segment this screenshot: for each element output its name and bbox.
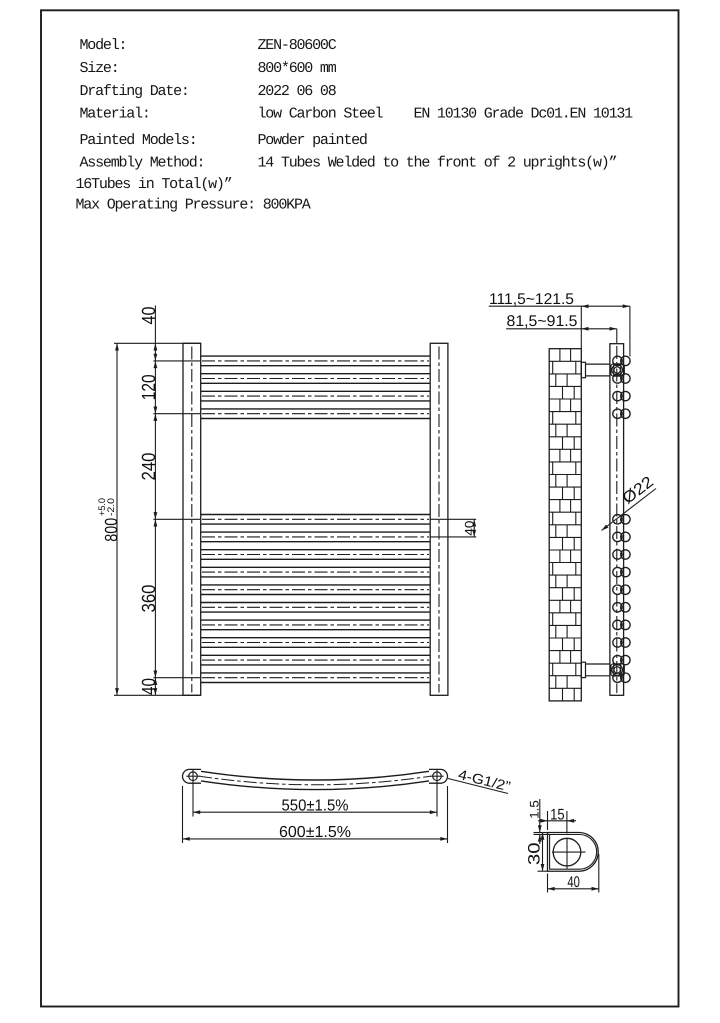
- svg-text:800*600 mm: 800*600 mm: [258, 60, 337, 77]
- svg-text:Drafting Date:: Drafting Date:: [80, 83, 189, 100]
- svg-text:15: 15: [550, 806, 565, 823]
- svg-text:Max Operating Pressure: 800KPA: Max Operating Pressure: 800KPA: [76, 197, 311, 214]
- svg-text:40: 40: [139, 307, 160, 325]
- svg-text:Powder painted: Powder painted: [258, 132, 367, 149]
- svg-text:1.5: 1.5: [528, 800, 542, 819]
- svg-text:-2.0: -2.0: [106, 498, 117, 516]
- svg-text:Size:: Size:: [80, 60, 119, 77]
- svg-text:2022 06 08: 2022 06 08: [258, 83, 337, 100]
- svg-text:360: 360: [139, 585, 160, 613]
- svg-text:Assembly Method:: Assembly Method:: [80, 154, 205, 171]
- svg-text:ZEN-80600C: ZEN-80600C: [258, 37, 337, 54]
- svg-text:40: 40: [567, 874, 580, 891]
- svg-text:40: 40: [139, 678, 160, 695]
- svg-text:600±1.5%: 600±1.5%: [279, 824, 351, 841]
- svg-text:40: 40: [462, 521, 476, 536]
- svg-text:16Tubes in Total(w)”: 16Tubes in Total(w)”: [76, 176, 232, 193]
- svg-text:Painted Models:: Painted Models:: [80, 132, 197, 149]
- svg-text:111,5~121.5: 111,5~121.5: [489, 291, 574, 308]
- svg-text:550±1.5%: 550±1.5%: [282, 797, 349, 814]
- svg-text:4-G1/2”: 4-G1/2”: [457, 766, 513, 794]
- svg-text:800: 800: [101, 518, 121, 542]
- svg-text:low Carbon Steel EN 10130 G: low Carbon Steel EN 10130 Grade Dc01.EN …: [258, 106, 634, 123]
- svg-text:Material:: Material:: [80, 106, 150, 123]
- svg-text:240: 240: [139, 453, 160, 481]
- svg-text:14 Tubes Welded to the front o: 14 Tubes Welded to the front of 2 uprigh…: [258, 154, 617, 171]
- svg-text:30: 30: [526, 843, 544, 866]
- svg-text:Model:: Model:: [80, 37, 127, 54]
- svg-text:120: 120: [139, 374, 160, 400]
- svg-text:81,5~91.5: 81,5~91.5: [507, 313, 578, 330]
